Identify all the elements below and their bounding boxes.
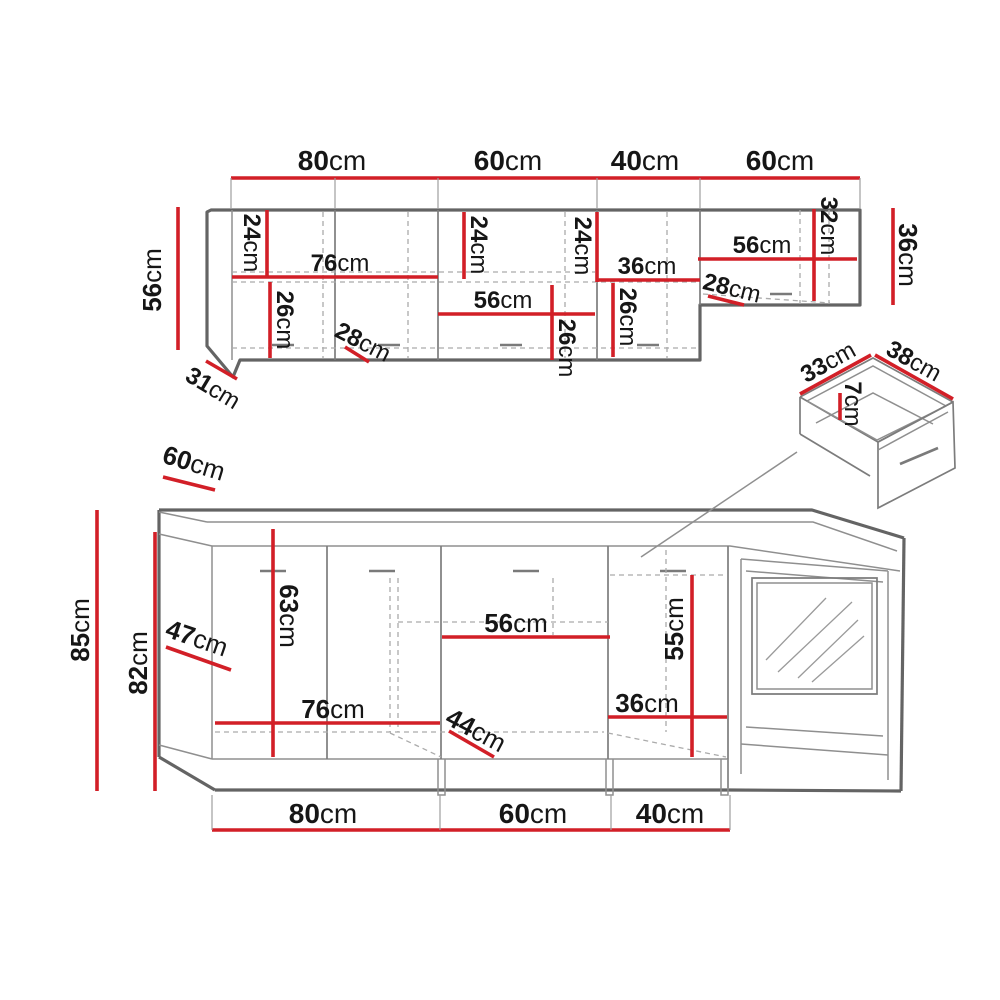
drawer-pointer-line	[641, 452, 797, 557]
dim-drawer-7: 7cm	[840, 381, 867, 426]
dim-label-upper-width-60b: 60cm	[746, 145, 814, 176]
dim-upper-left-height: 56cm	[137, 207, 211, 350]
drawer-detail: 33cm 38cm 7cm	[641, 335, 955, 557]
dim-upper-26-right: 26cm	[613, 283, 642, 357]
dim-label-upper-width-80: 80cm	[298, 145, 366, 176]
dashed-depth-line	[608, 733, 726, 757]
counter-end-cap-bottom	[159, 534, 212, 546]
dim-label-56-left: 56cm	[137, 248, 167, 312]
oven-window-frame	[752, 578, 877, 694]
upper-top-dimension-line: 80cm 60cm 40cm 60cm	[231, 145, 860, 209]
base-outline	[159, 510, 904, 791]
oven-window-inner	[757, 583, 872, 689]
dim-base-counter-depth: 60cm	[159, 439, 229, 543]
dim-label: 56cm	[484, 608, 548, 638]
dim-base-76: 76cm	[215, 694, 440, 724]
oven-top-trim	[741, 559, 888, 571]
drawer-floor	[816, 393, 933, 424]
dim-label: 76cm	[311, 250, 370, 277]
base-bottom-edge	[215, 790, 901, 791]
dim-label: 24cm	[239, 214, 266, 273]
dim-label-base-width-80: 80cm	[289, 798, 357, 829]
dim-upper-right-height: 36cm	[860, 208, 923, 305]
dim-base-55: 55cm	[659, 575, 692, 757]
diagram-canvas: 80cm 60cm 40cm 60cm	[0, 0, 1000, 1000]
dim-upper-26-left: 26cm	[270, 282, 299, 358]
dim-upper-36-mid: 36cm	[597, 253, 700, 281]
dim-label: 36cm	[615, 688, 679, 718]
dim-upper-24-left: 24cm	[239, 210, 268, 277]
dim-label: 24cm	[466, 216, 493, 275]
dim-label: 63cm	[274, 584, 304, 648]
dim-base-44: 44cm	[441, 702, 511, 758]
dim-label: 55cm	[659, 597, 689, 661]
dim-label-47: 47cm	[162, 613, 232, 662]
dim-label-base-width-60: 60cm	[499, 798, 567, 829]
countertop-back-edge	[159, 510, 904, 538]
corner-recess-slant	[159, 745, 212, 759]
dim-label: 26cm	[554, 319, 581, 378]
base-cabinets: 80cm 60cm 40cm 60cm 85cm 82cm 47cm	[65, 439, 904, 830]
oven-top-trim-inner	[746, 571, 883, 582]
dim-label: 26cm	[615, 288, 642, 347]
dim-label: 38cm	[882, 335, 946, 387]
dim-label: 32cm	[816, 197, 843, 256]
drawer-front-panel	[878, 402, 955, 508]
dim-label-85: 85cm	[65, 598, 95, 662]
dim-label: 56cm	[474, 287, 533, 314]
dim-upper-32-right: 32cm	[814, 197, 843, 301]
dim-label: 36cm	[618, 253, 677, 280]
base-bottom-dimension-line: 80cm 60cm 40cm	[212, 795, 730, 830]
glass-shine	[766, 598, 826, 660]
dim-upper-28-right-depth: 28cm	[700, 268, 763, 308]
oven-bottom-trim	[746, 727, 883, 736]
counter-end-cap-top	[159, 512, 207, 522]
dim-upper-56-mid-shelf: 56cm	[438, 287, 595, 315]
glass-shine	[812, 636, 864, 682]
dim-base-56: 56cm	[442, 608, 610, 638]
dim-base-carcass-height: 82cm	[123, 532, 155, 791]
dim-drawer-38: 38cm	[875, 335, 953, 399]
dim-base-36: 36cm	[608, 688, 727, 718]
drawer-left-wall-bottom	[800, 434, 870, 476]
dim-upper-26-mid: 26cm	[552, 285, 581, 377]
dim-upper-24-mid-right: 24cm	[570, 212, 598, 282]
drawer-handle	[900, 448, 938, 464]
dim-label: 24cm	[570, 217, 597, 276]
oven-bottom-trim-inner	[741, 744, 888, 755]
dim-label-upper-width-40: 40cm	[611, 145, 679, 176]
dim-base-corner-door: 47cm	[162, 613, 232, 670]
dim-label-upper-width-60a: 60cm	[474, 145, 542, 176]
base-right-edge	[901, 538, 904, 791]
kitchen-dimension-diagram: 80cm 60cm 40cm 60cm	[0, 0, 1000, 1000]
drawer-front-panel-line	[878, 412, 948, 450]
dim-upper-24-mid: 24cm	[464, 212, 493, 279]
oven	[741, 559, 888, 780]
dim-label-base-width-40: 40cm	[636, 798, 704, 829]
dim-label-82: 82cm	[123, 631, 153, 695]
dim-label: 7cm	[840, 381, 867, 426]
dim-label: 76cm	[301, 694, 365, 724]
dim-label-36-right: 36cm	[893, 223, 923, 287]
corner-plinth-bevel	[159, 757, 215, 790]
counter-front-bottom-edge	[212, 546, 900, 571]
dim-label: 44cm	[441, 702, 511, 758]
dim-label: 26cm	[272, 291, 299, 350]
dim-label: 56cm	[733, 232, 792, 259]
dashed-depth-line	[390, 733, 441, 757]
